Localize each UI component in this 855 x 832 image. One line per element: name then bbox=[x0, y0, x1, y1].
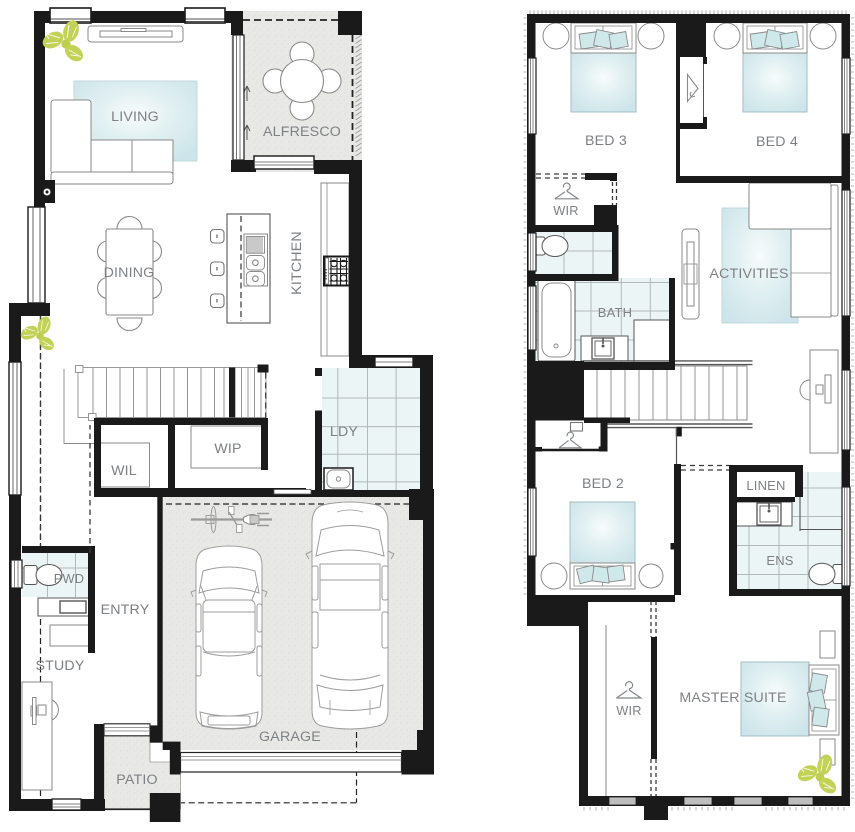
svg-text:BATH: BATH bbox=[598, 305, 633, 320]
svg-text:LIVING: LIVING bbox=[111, 109, 159, 125]
svg-text:DINING: DINING bbox=[104, 265, 155, 281]
svg-text:BED 2: BED 2 bbox=[582, 476, 624, 492]
svg-text:GARAGE: GARAGE bbox=[259, 729, 321, 745]
svg-text:LINEN: LINEN bbox=[746, 478, 785, 493]
svg-text:WIP: WIP bbox=[214, 441, 241, 457]
svg-text:PATIO: PATIO bbox=[116, 772, 157, 788]
svg-text:WIL: WIL bbox=[111, 463, 137, 479]
svg-text:KITCHEN: KITCHEN bbox=[289, 231, 305, 295]
svg-text:MASTER SUITE: MASTER SUITE bbox=[679, 690, 786, 706]
svg-text:LDY: LDY bbox=[330, 424, 359, 440]
svg-text:PWD: PWD bbox=[54, 571, 84, 586]
svg-text:ACTIVITIES: ACTIVITIES bbox=[709, 266, 788, 282]
svg-text:BED 3: BED 3 bbox=[585, 133, 627, 149]
svg-text:ENS: ENS bbox=[766, 553, 793, 568]
svg-text:ALFRESCO: ALFRESCO bbox=[263, 124, 341, 140]
svg-text:ENTRY: ENTRY bbox=[101, 602, 150, 618]
svg-text:WIR: WIR bbox=[616, 703, 641, 718]
svg-text:STUDY: STUDY bbox=[35, 658, 84, 674]
svg-text:BED 4: BED 4 bbox=[756, 134, 798, 150]
svg-text:WIR: WIR bbox=[553, 203, 578, 218]
